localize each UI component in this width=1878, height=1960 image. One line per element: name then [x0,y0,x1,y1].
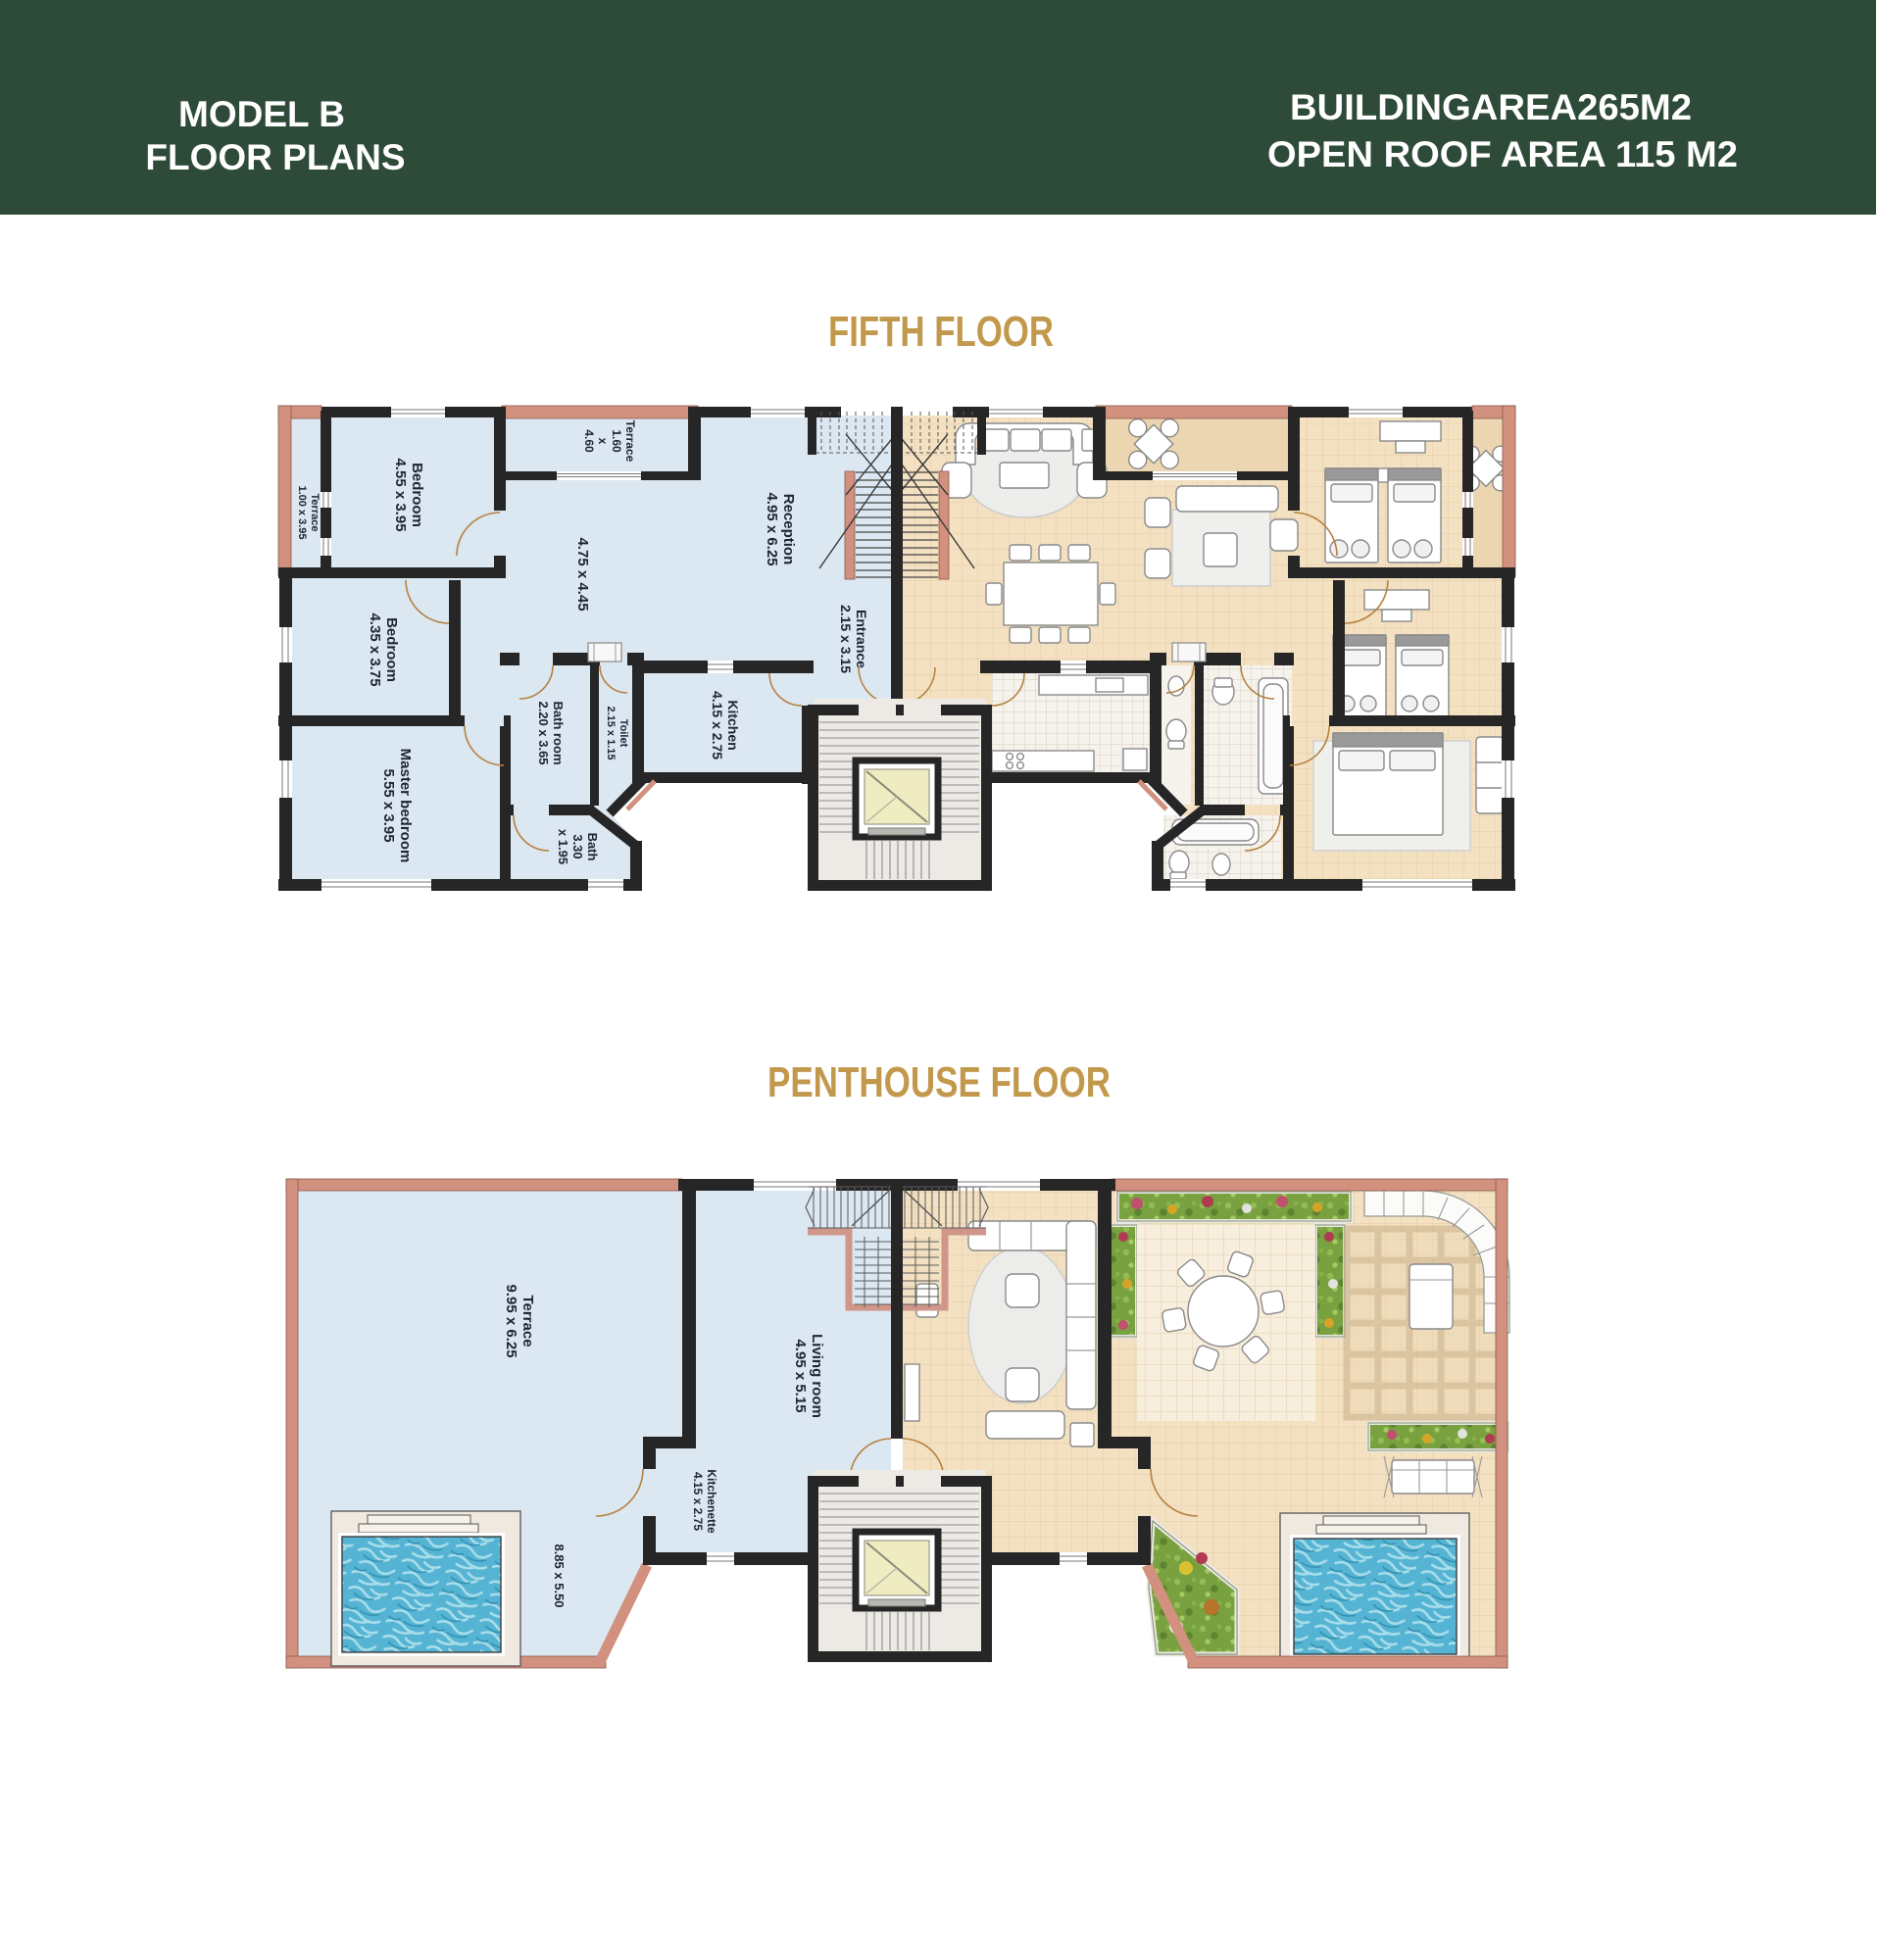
svg-text:MODEL B: MODEL B [178,94,345,134]
svg-text:2.15 x 3.15: 2.15 x 3.15 [838,605,854,673]
svg-text:Master bedroom: Master bedroom [397,749,414,863]
svg-text:PENTHOUSE FLOOR: PENTHOUSE FLOOR [767,1058,1111,1106]
svg-text:x 1.95: x 1.95 [556,829,570,864]
svg-text:FIFTH FLOOR: FIFTH FLOOR [828,308,1054,356]
svg-text:OPEN ROOF AREA 115 M2: OPEN ROOF AREA 115 M2 [1267,134,1738,174]
svg-text:4.35 x 3.75: 4.35 x 3.75 [367,612,383,686]
svg-text:Bath: Bath [585,833,600,861]
svg-text:Terrace: Terrace [519,1295,536,1347]
svg-text:4.75 x 4.45: 4.75 x 4.45 [574,537,591,611]
svg-text:1.00 x 3.95: 1.00 x 3.95 [296,485,308,539]
svg-text:FLOOR PLANS: FLOOR PLANS [145,137,405,177]
svg-text:8.85 x 5.50: 8.85 x 5.50 [552,1543,567,1607]
svg-text:2.20 x 3.65: 2.20 x 3.65 [536,701,551,764]
svg-text:4.15 x 2.75: 4.15 x 2.75 [691,1472,705,1531]
svg-text:4.55 x 3.95: 4.55 x 3.95 [392,458,409,531]
svg-text:BUILDINGAREA265M2: BUILDINGAREA265M2 [1290,87,1692,127]
svg-text:Living room: Living room [809,1334,825,1418]
svg-text:4.95 x 6.25: 4.95 x 6.25 [764,492,780,565]
svg-text:Kitchen: Kitchen [725,700,741,750]
svg-text:Reception: Reception [780,494,797,565]
svg-text:x: x [596,438,610,445]
svg-text:Bedroom: Bedroom [383,617,400,682]
svg-text:4.95 x 5.15: 4.95 x 5.15 [792,1339,809,1412]
svg-text:2.15 x 1.15: 2.15 x 1.15 [605,706,617,759]
svg-text:4.60: 4.60 [582,429,596,453]
svg-text:1.60: 1.60 [610,429,623,453]
svg-text:Entrance: Entrance [854,610,869,668]
svg-text:Toilet: Toilet [618,719,629,748]
svg-text:Bedroom: Bedroom [409,463,425,527]
svg-text:3.30: 3.30 [570,834,585,858]
svg-text:Terrace: Terrace [309,494,321,532]
svg-text:4.15 x 2.75: 4.15 x 2.75 [710,691,725,759]
svg-text:5.55 x 3.95: 5.55 x 3.95 [380,768,397,842]
svg-text:Terrace: Terrace [623,420,637,463]
svg-text:9.95 x 6.25: 9.95 x 6.25 [503,1284,519,1357]
svg-text:Bath room: Bath room [551,702,566,765]
svg-text:Kitchenette: Kitchenette [705,1469,718,1534]
